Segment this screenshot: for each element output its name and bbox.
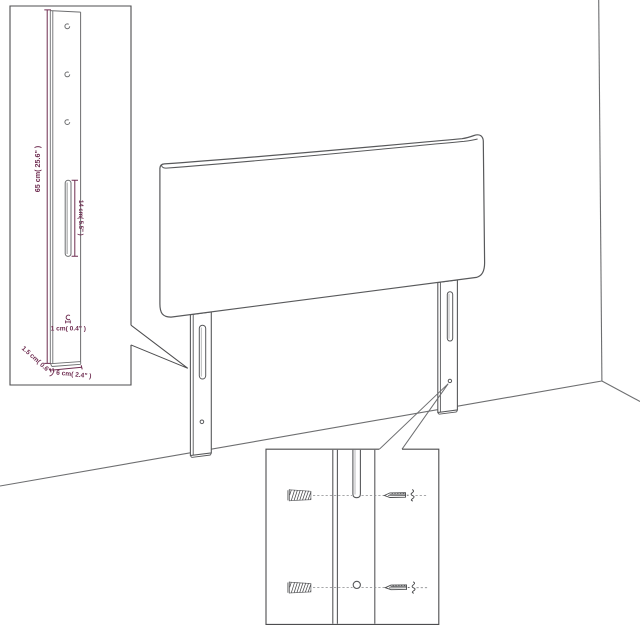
- svg-text:65 cm( 25.6" ): 65 cm( 25.6" ): [33, 145, 42, 192]
- svg-text:14 cm( 5.5" ): 14 cm( 5.5" ): [77, 200, 83, 236]
- svg-text:1 cm( 0.4" ): 1 cm( 0.4" ): [51, 326, 86, 333]
